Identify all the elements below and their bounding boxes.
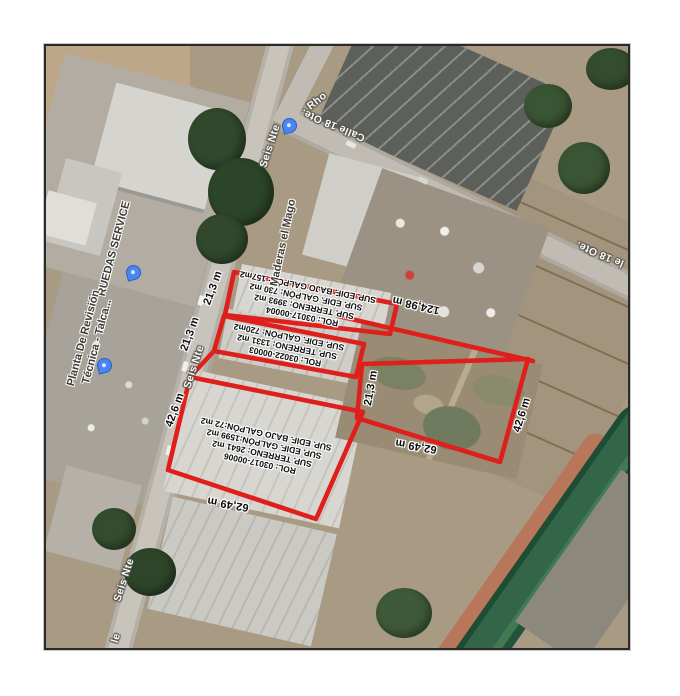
- measurement-label: 62,49 m: [206, 494, 249, 513]
- satellite-map[interactable]: ROL: 03017-00004 SUP. TERRENO: 3993 m2 S…: [46, 46, 628, 648]
- parcel-annotation-03017-00006: ROL: 03017-00006 SUP. TERRENO: 2641 m2 S…: [194, 416, 333, 483]
- map-pin-seis-nte[interactable]: [280, 116, 298, 134]
- poi-label[interactable]: Maderas el Mago: [268, 198, 300, 288]
- street-label: Calle 18 Ote.: [299, 106, 366, 144]
- poi-label[interactable]: Planta De Revisión Técnica - Talca...: [65, 289, 117, 392]
- document-page: ROL: 03017-00004 SUP. TERRENO: 3993 m2 S…: [0, 0, 680, 696]
- map-frame: ROL: 03017-00004 SUP. TERRENO: 3993 m2 S…: [44, 44, 630, 650]
- poi-label[interactable]: RUEDAS SERVICE: [96, 200, 135, 298]
- measurement-label: 42,6 m: [511, 396, 533, 433]
- measurement-label: 21,3 m: [201, 269, 224, 306]
- map-pin-ruedas[interactable]: [124, 263, 142, 281]
- street-label: le 18 Ote.: [574, 239, 625, 270]
- parcel-annotation-03022-00003: ROL: 03022-00003 SUP. TERRENO: 1331 m2 S…: [229, 322, 345, 373]
- street-label: Seis Nte: [111, 557, 136, 603]
- measurement-label: 21,3 m: [362, 370, 380, 407]
- measurement-label: 124,98 m: [391, 294, 441, 317]
- measurement-label: 42,6 m: [163, 391, 186, 428]
- measurement-label: 62,49 m: [394, 436, 437, 455]
- labels-layer: ROL: 03017-00004 SUP. TERRENO: 3993 m2 S…: [46, 46, 628, 648]
- street-label: Seis Nte: [257, 123, 282, 169]
- street-label: le: [109, 632, 123, 645]
